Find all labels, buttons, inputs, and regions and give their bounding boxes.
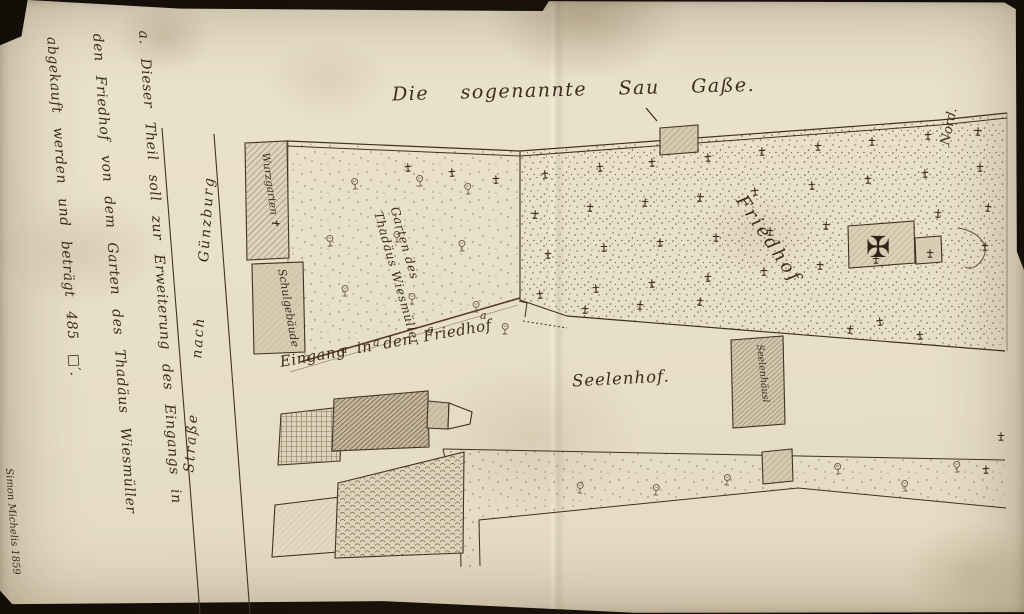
scale-roof-building — [335, 452, 464, 558]
path-marker-a: a — [373, 337, 380, 349]
gatehouse — [660, 125, 698, 155]
lower-yard-ground — [443, 449, 1005, 568]
path-marker-a: a — [303, 352, 310, 364]
small-hatched-shed — [762, 449, 793, 484]
photographed-map: ✠ — [0, 0, 1024, 614]
faint-outlined-building — [272, 497, 340, 557]
path-marker-a: a — [341, 344, 348, 356]
annex-building — [427, 401, 472, 429]
path-marker-a: a — [427, 324, 434, 336]
tree-icon — [502, 323, 509, 334]
grave-cross-icon — [998, 433, 1004, 440]
path-marker-a: a — [480, 310, 487, 322]
dark-hatched-building — [332, 391, 429, 451]
